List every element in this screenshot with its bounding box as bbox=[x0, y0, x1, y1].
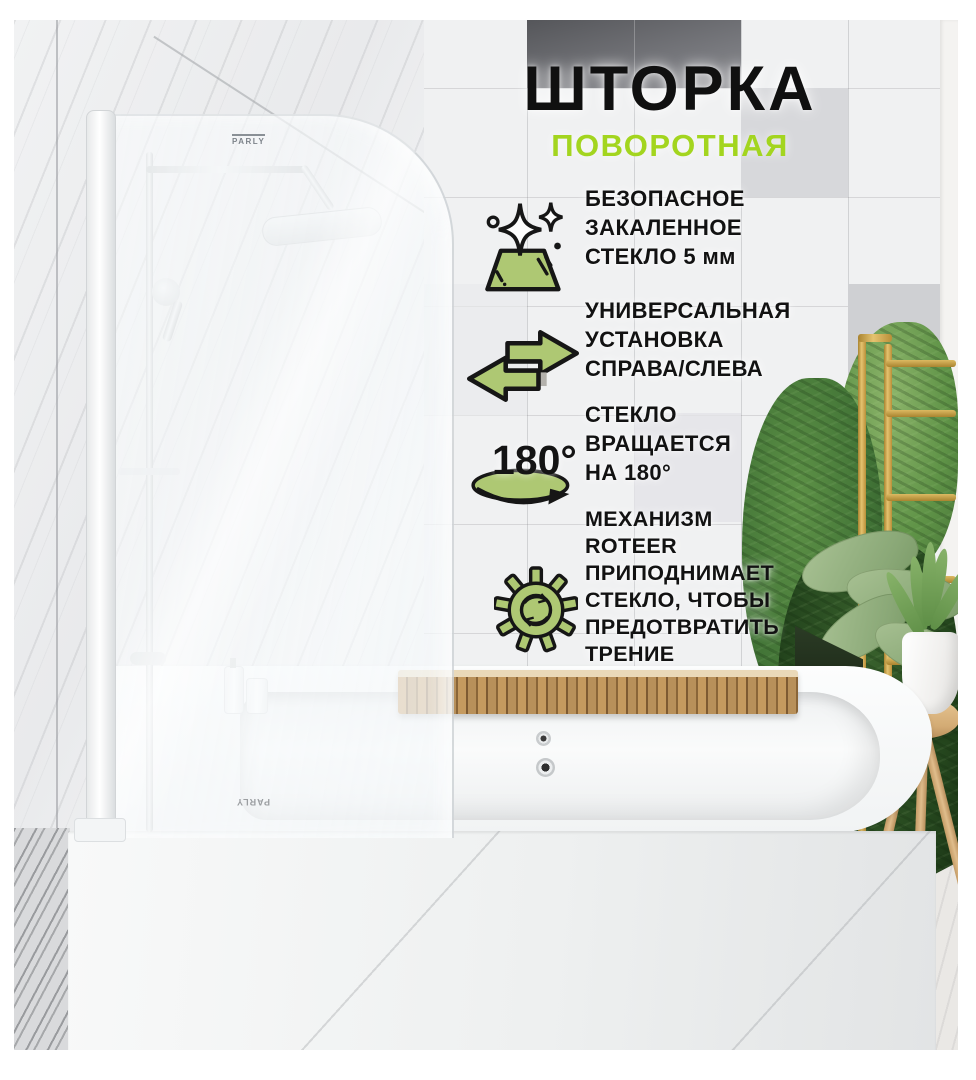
bathtub-overflow bbox=[536, 758, 555, 777]
canvas-border bbox=[0, 1050, 976, 1080]
sparkling-glass-icon bbox=[468, 196, 574, 294]
bathtub-front-panel bbox=[68, 831, 936, 1050]
wooden-bath-tray bbox=[398, 670, 798, 714]
towel-ladder-hook bbox=[858, 334, 892, 342]
rotation-degrees-label: 180° bbox=[492, 438, 577, 482]
product-infographic: PARLY PARLY ШТОРКА ПОВОРОТНАЯ bbox=[0, 0, 976, 1080]
feature-roteer-mechanism: МЕХАНИЗМ ROTEER ПРИПОДНИМАЕТ СТЕКЛО, ЧТО… bbox=[585, 506, 855, 668]
canvas-border bbox=[0, 0, 976, 20]
towel-ladder-rung bbox=[886, 494, 956, 501]
page-subtitle: ПОВОРОТНАЯ bbox=[468, 129, 872, 162]
canvas-border bbox=[0, 0, 14, 1080]
wall-panel-joint bbox=[56, 20, 58, 832]
tub-brand-label: PARLY bbox=[236, 797, 270, 807]
glass-brand-label: PARLY bbox=[232, 134, 265, 146]
feature-rotates-180: СТЕКЛО ВРАЩАЕТСЯ НА 180° bbox=[585, 400, 855, 487]
headline: ШТОРКА ПОВОРОТНАЯ bbox=[468, 56, 872, 162]
gear-icon bbox=[494, 566, 578, 654]
towel-ladder-rung bbox=[886, 360, 956, 367]
shower-glass-screen bbox=[112, 114, 454, 838]
feature-safe-glass: БЕЗОПАСНОЕ ЗАКАЛЕННОЕ СТЕКЛО 5 мм bbox=[585, 184, 855, 271]
screen-wall-profile bbox=[86, 110, 116, 840]
canvas-border bbox=[958, 0, 976, 1080]
screen-bottom-bracket bbox=[74, 818, 126, 842]
page-title: ШТОРКА bbox=[468, 56, 872, 122]
marble-wall-lower-left bbox=[14, 828, 70, 1050]
towel-ladder-rung bbox=[886, 410, 956, 417]
feature-universal-install: УНИВЕРСАЛЬНАЯ УСТАНОВКА СПРАВА/СЛЕВА bbox=[585, 296, 855, 383]
rotate-180-icon: 180° bbox=[466, 438, 580, 508]
left-right-arrows-icon bbox=[462, 328, 584, 404]
bathtub-overflow bbox=[536, 731, 551, 746]
